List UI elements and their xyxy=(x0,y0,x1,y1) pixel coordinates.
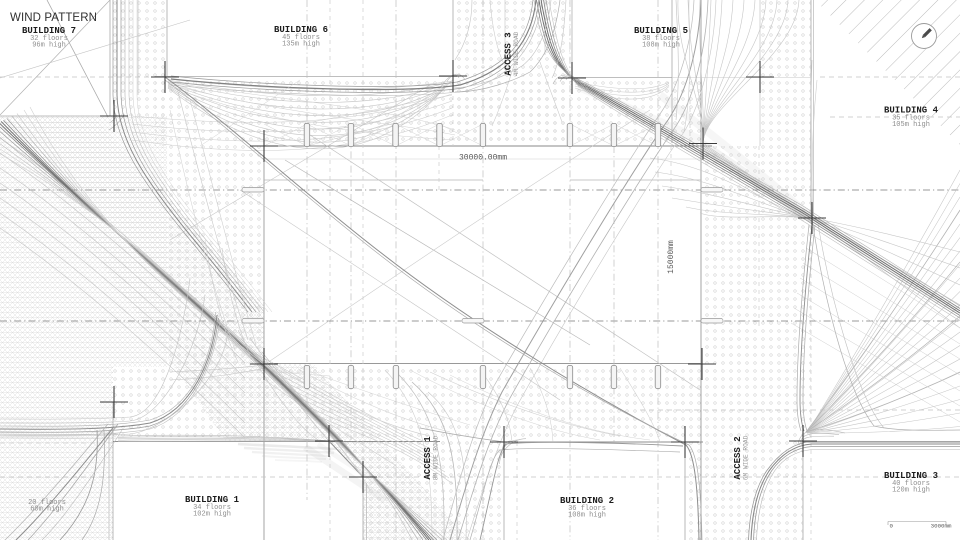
svg-text:15000mm: 15000mm xyxy=(667,240,676,274)
svg-text:108m high: 108m high xyxy=(642,42,680,50)
svg-text:WIND PATTERN: WIND PATTERN xyxy=(10,12,97,24)
svg-text:120m high: 120m high xyxy=(892,487,930,495)
svg-text:ACCESS 1: ACCESS 1 xyxy=(423,436,433,480)
svg-text:ACCESS 2: ACCESS 2 xyxy=(733,436,743,479)
svg-text:3000mm: 3000mm xyxy=(931,523,952,530)
svg-text:105m high: 105m high xyxy=(892,121,930,129)
svg-text:102m high: 102m high xyxy=(193,511,231,519)
svg-text:135m high: 135m high xyxy=(282,41,320,49)
svg-text:ACCESS 3: ACCESS 3 xyxy=(504,32,514,75)
svg-text:108m high: 108m high xyxy=(568,512,606,520)
svg-text:30000.00mm: 30000.00mm xyxy=(459,154,507,163)
svg-text:60m high: 60m high xyxy=(30,506,64,514)
svg-text:6M WIDE ROAD: 6M WIDE ROAD xyxy=(743,435,750,480)
svg-text:4M WIDE ROAD: 4M WIDE ROAD xyxy=(513,31,520,76)
svg-text:96m high: 96m high xyxy=(32,42,66,50)
svg-text:0: 0 xyxy=(890,523,894,530)
svg-text:8M WIDE ROAD: 8M WIDE ROAD xyxy=(433,435,440,480)
